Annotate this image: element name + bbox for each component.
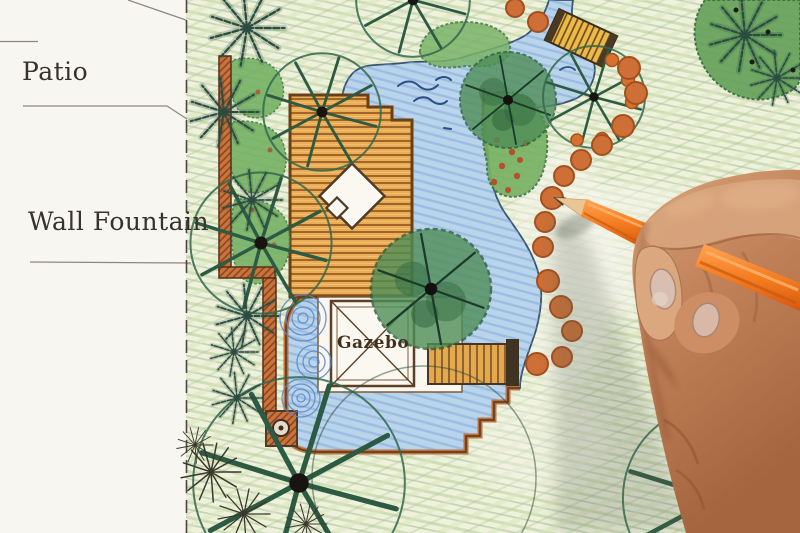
- gazebo-label: Gazebo: [337, 335, 409, 352]
- tree-canopy-symbol: [371, 229, 491, 349]
- wall-fountain-label: Wall Fountain: [28, 209, 209, 234]
- patio-label: Patio: [22, 59, 88, 84]
- tree-canopy-symbol: [460, 52, 556, 148]
- photo-of-landscape-plan: Patio Wall Fountain Gazebo: [0, 0, 800, 533]
